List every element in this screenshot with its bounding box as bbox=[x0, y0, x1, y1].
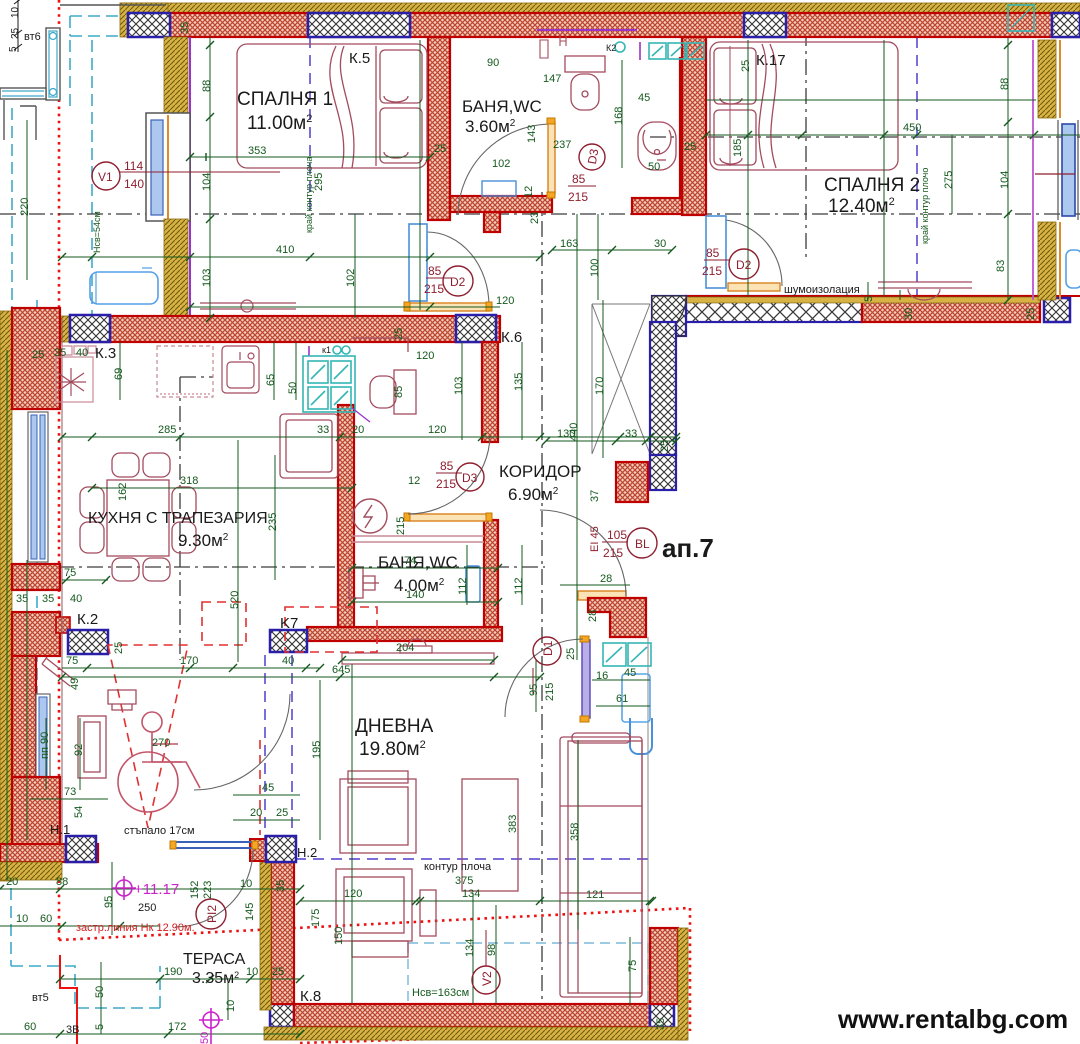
svg-text:стъпало 17см: стъпало 17см bbox=[124, 825, 195, 837]
svg-text:172: 172 bbox=[168, 1021, 186, 1033]
svg-text:37: 37 bbox=[589, 490, 601, 502]
svg-text:к1: к1 bbox=[322, 345, 331, 355]
svg-text:73: 73 bbox=[64, 786, 76, 798]
svg-text:163: 163 bbox=[560, 238, 578, 250]
svg-text:BL: BL bbox=[635, 537, 650, 551]
svg-text:35: 35 bbox=[54, 347, 66, 359]
svg-text:12.40м2: 12.40м2 bbox=[828, 196, 895, 217]
svg-text:520: 520 bbox=[229, 591, 241, 609]
svg-text:285: 285 bbox=[158, 424, 176, 436]
svg-text:вт5: вт5 bbox=[32, 992, 49, 1004]
svg-text:К.3: К.3 bbox=[95, 345, 116, 362]
svg-text:358: 358 bbox=[569, 823, 581, 841]
svg-text:195: 195 bbox=[311, 741, 323, 759]
svg-text:25: 25 bbox=[272, 966, 284, 978]
svg-text:35: 35 bbox=[16, 593, 28, 605]
svg-text:30: 30 bbox=[903, 308, 915, 320]
svg-text:237: 237 bbox=[553, 139, 571, 151]
svg-text:D3: D3 bbox=[462, 471, 478, 485]
svg-text:40: 40 bbox=[76, 347, 88, 359]
svg-text:83: 83 bbox=[995, 260, 1007, 272]
svg-text:25: 25 bbox=[276, 807, 288, 819]
svg-text:85: 85 bbox=[440, 459, 454, 473]
svg-text:85: 85 bbox=[706, 246, 720, 260]
svg-text:190: 190 bbox=[164, 966, 182, 978]
svg-text:168: 168 bbox=[613, 107, 625, 125]
svg-text:край контур плоча: край контур плоча bbox=[304, 157, 314, 233]
svg-text:К.5: К.5 bbox=[349, 50, 370, 67]
svg-text:3.60м2: 3.60м2 bbox=[465, 117, 516, 136]
svg-text:25: 25 bbox=[1025, 308, 1037, 320]
svg-text:25: 25 bbox=[10, 27, 21, 39]
svg-text:10: 10 bbox=[240, 878, 252, 890]
svg-text:88: 88 bbox=[999, 78, 1011, 90]
svg-text:5: 5 bbox=[863, 296, 875, 302]
svg-text:50: 50 bbox=[648, 161, 660, 173]
svg-text:275: 275 bbox=[943, 171, 955, 189]
svg-text:16: 16 bbox=[596, 670, 608, 682]
svg-text:170: 170 bbox=[594, 377, 606, 395]
svg-text:105: 105 bbox=[607, 528, 627, 542]
svg-text:375: 375 bbox=[455, 875, 473, 887]
svg-text:215: 215 bbox=[702, 264, 722, 278]
svg-text:75: 75 bbox=[627, 960, 639, 972]
svg-text:74: 74 bbox=[404, 555, 416, 567]
svg-text:25: 25 bbox=[434, 143, 446, 155]
svg-text:102: 102 bbox=[345, 269, 357, 287]
svg-text:K7: K7 bbox=[280, 615, 298, 632]
svg-text:К.17: К.17 bbox=[756, 52, 786, 69]
svg-text:3В: 3В bbox=[66, 1024, 79, 1036]
svg-text:+11.17: +11.17 bbox=[134, 881, 179, 898]
svg-text:ап.7: ап.7 bbox=[662, 533, 714, 563]
svg-text:25: 25 bbox=[393, 328, 405, 340]
svg-text:102: 102 bbox=[492, 158, 510, 170]
svg-text:120: 120 bbox=[416, 350, 434, 362]
svg-text:143: 143 bbox=[526, 125, 538, 143]
svg-text:215: 215 bbox=[395, 517, 407, 535]
svg-text:25: 25 bbox=[32, 349, 44, 361]
svg-text:D2: D2 bbox=[736, 258, 752, 272]
svg-text:104: 104 bbox=[201, 173, 213, 191]
svg-text:120: 120 bbox=[496, 295, 514, 307]
svg-text:114: 114 bbox=[124, 159, 143, 173]
svg-text:50: 50 bbox=[94, 986, 106, 998]
svg-text:вт6: вт6 bbox=[24, 31, 41, 43]
svg-text:147: 147 bbox=[543, 73, 561, 85]
svg-text:пп 90: пп 90 bbox=[39, 732, 51, 759]
svg-text:104: 104 bbox=[999, 171, 1011, 189]
svg-text:88: 88 bbox=[56, 876, 68, 888]
svg-text:112: 112 bbox=[457, 577, 469, 595]
svg-text:60: 60 bbox=[24, 1021, 36, 1033]
svg-text:ДНЕВНА: ДНЕВНА bbox=[355, 716, 434, 737]
svg-text:33: 33 bbox=[317, 424, 329, 436]
svg-text:H.1: H.1 bbox=[50, 822, 70, 837]
svg-text:К2: К2 bbox=[606, 43, 616, 53]
svg-text:10: 10 bbox=[246, 966, 258, 978]
svg-text:35: 35 bbox=[42, 593, 54, 605]
svg-text:H.2: H.2 bbox=[297, 845, 317, 860]
svg-text:EI 45: EI 45 bbox=[589, 526, 601, 552]
svg-text:25: 25 bbox=[684, 141, 696, 153]
svg-text:95: 95 bbox=[528, 684, 540, 696]
svg-text:50: 50 bbox=[287, 382, 299, 394]
svg-text:30: 30 bbox=[654, 238, 666, 250]
svg-text:20: 20 bbox=[352, 424, 364, 436]
svg-text:БАНЯ,WC: БАНЯ,WC bbox=[462, 97, 542, 116]
svg-text:25: 25 bbox=[659, 440, 671, 452]
svg-text:К.6: К.6 bbox=[501, 329, 522, 346]
svg-text:98: 98 bbox=[486, 944, 498, 956]
svg-text:318: 318 bbox=[180, 475, 198, 487]
svg-text:край контур плочо: край контур плочо bbox=[920, 168, 930, 244]
svg-text:215: 215 bbox=[603, 546, 623, 560]
svg-text:69: 69 bbox=[113, 368, 125, 380]
svg-text:застр.линия Нк 12.90м.: застр.линия Нк 12.90м. bbox=[76, 922, 195, 934]
svg-text:120: 120 bbox=[428, 424, 446, 436]
svg-text:383: 383 bbox=[507, 815, 519, 833]
svg-text:204: 204 bbox=[396, 642, 414, 654]
svg-text:120: 120 bbox=[344, 888, 362, 900]
svg-text:СПАЛНЯ 1: СПАЛНЯ 1 bbox=[237, 89, 333, 110]
svg-text:25: 25 bbox=[740, 60, 752, 72]
svg-text:PI2: PI2 bbox=[205, 905, 219, 923]
svg-text:85: 85 bbox=[572, 172, 586, 186]
svg-text:К.8: К.8 bbox=[300, 988, 321, 1005]
svg-text:49: 49 bbox=[69, 678, 81, 690]
svg-text:23: 23 bbox=[529, 212, 541, 224]
svg-text:295: 295 bbox=[313, 173, 325, 191]
svg-text:150: 150 bbox=[333, 927, 345, 945]
svg-text:12: 12 bbox=[408, 475, 420, 487]
svg-text:45: 45 bbox=[262, 782, 274, 794]
svg-text:185: 185 bbox=[732, 139, 744, 157]
svg-text:175: 175 bbox=[310, 909, 322, 927]
svg-text:152: 152 bbox=[189, 881, 201, 899]
svg-text:223: 223 bbox=[202, 881, 214, 899]
svg-text:V2: V2 bbox=[480, 971, 494, 986]
svg-text:140: 140 bbox=[406, 589, 424, 601]
svg-text:215: 215 bbox=[424, 282, 444, 296]
svg-text:К.2: К.2 bbox=[77, 611, 98, 628]
svg-text:www.rentalbg.com: www.rentalbg.com bbox=[837, 1004, 1068, 1034]
svg-text:50: 50 bbox=[199, 1032, 211, 1044]
svg-text:10: 10 bbox=[16, 913, 28, 925]
svg-text:450: 450 bbox=[903, 122, 921, 134]
svg-text:353: 353 bbox=[248, 145, 266, 157]
svg-text:33: 33 bbox=[625, 428, 637, 440]
svg-text:D2: D2 bbox=[450, 275, 466, 289]
svg-text:10: 10 bbox=[225, 1000, 237, 1012]
svg-text:25: 25 bbox=[565, 648, 577, 660]
svg-text:6.90м2: 6.90м2 bbox=[508, 485, 559, 504]
svg-text:45: 45 bbox=[638, 92, 650, 104]
svg-text:БАНЯ,WC: БАНЯ,WC bbox=[378, 553, 458, 572]
svg-text:5: 5 bbox=[94, 1024, 106, 1030]
svg-text:20: 20 bbox=[6, 876, 18, 888]
svg-text:134: 134 bbox=[462, 888, 480, 900]
svg-text:Нсв=163см: Нсв=163см bbox=[412, 987, 469, 999]
svg-text:215: 215 bbox=[544, 683, 556, 701]
svg-text:75: 75 bbox=[64, 567, 76, 579]
svg-text:3.35м2: 3.35м2 bbox=[192, 970, 239, 987]
svg-text:КУХНЯ С ТРАПЕЗАРИЯ: КУХНЯ С ТРАПЕЗАРИЯ bbox=[88, 510, 268, 527]
svg-text:контур плоча: контур плоча bbox=[424, 861, 492, 873]
svg-text:D1: D1 bbox=[541, 640, 555, 656]
svg-text:270: 270 bbox=[152, 737, 170, 749]
svg-text:92: 92 bbox=[73, 744, 85, 756]
svg-text:103: 103 bbox=[453, 377, 465, 395]
svg-text:D3: D3 bbox=[585, 147, 602, 165]
svg-text:170: 170 bbox=[180, 655, 198, 667]
svg-text:135: 135 bbox=[513, 373, 525, 391]
svg-text:250: 250 bbox=[138, 902, 156, 914]
svg-text:11.00м2: 11.00м2 bbox=[247, 113, 312, 134]
svg-text:12: 12 bbox=[523, 186, 535, 198]
svg-text:65: 65 bbox=[265, 374, 277, 386]
svg-text:28: 28 bbox=[600, 573, 612, 585]
svg-text:25: 25 bbox=[113, 642, 125, 654]
svg-text:645: 645 bbox=[332, 664, 350, 676]
svg-text:V1: V1 bbox=[98, 170, 113, 184]
svg-text:215: 215 bbox=[436, 477, 456, 491]
svg-text:162: 162 bbox=[117, 483, 129, 501]
svg-text:40: 40 bbox=[282, 655, 294, 667]
svg-text:215: 215 bbox=[568, 190, 588, 204]
svg-text:шумоизолация: шумоизолация bbox=[784, 284, 860, 296]
svg-text:28: 28 bbox=[587, 610, 599, 622]
svg-text:85: 85 bbox=[393, 386, 405, 398]
svg-text:Нсв=54см: Нсв=54см bbox=[92, 211, 102, 253]
svg-text:121: 121 bbox=[586, 889, 604, 901]
svg-text:140: 140 bbox=[124, 177, 144, 191]
svg-text:35: 35 bbox=[179, 22, 191, 34]
svg-text:10: 10 bbox=[10, 6, 21, 18]
svg-text:40: 40 bbox=[70, 593, 82, 605]
svg-text:9.30м2: 9.30м2 bbox=[178, 531, 229, 550]
svg-text:95: 95 bbox=[103, 896, 115, 908]
svg-text:45: 45 bbox=[624, 667, 636, 679]
svg-text:112: 112 bbox=[513, 577, 525, 595]
svg-text:85: 85 bbox=[428, 264, 442, 278]
svg-text:134: 134 bbox=[464, 939, 476, 957]
svg-text:100: 100 bbox=[589, 259, 601, 277]
svg-text:СПАЛНЯ 2: СПАЛНЯ 2 bbox=[824, 175, 920, 196]
svg-text:ТЕРАСА: ТЕРАСА bbox=[183, 951, 246, 968]
svg-text:61: 61 bbox=[616, 693, 628, 705]
svg-text:54: 54 bbox=[73, 806, 85, 818]
svg-text:145: 145 bbox=[244, 903, 256, 921]
svg-text:КОРИДОР: КОРИДОР bbox=[499, 462, 582, 481]
svg-text:88: 88 bbox=[201, 80, 213, 92]
svg-text:220: 220 bbox=[19, 198, 31, 216]
svg-text:103: 103 bbox=[201, 269, 213, 287]
svg-text:75: 75 bbox=[66, 655, 78, 667]
svg-text:35: 35 bbox=[275, 880, 287, 892]
svg-text:35: 35 bbox=[655, 1018, 667, 1030]
svg-text:440: 440 bbox=[568, 423, 580, 441]
svg-text:235: 235 bbox=[267, 513, 279, 531]
svg-text:410: 410 bbox=[276, 244, 294, 256]
svg-text:19.80м2: 19.80м2 bbox=[359, 739, 426, 760]
svg-text:90: 90 bbox=[487, 57, 499, 69]
svg-text:20: 20 bbox=[250, 807, 262, 819]
svg-text:60: 60 bbox=[40, 913, 52, 925]
